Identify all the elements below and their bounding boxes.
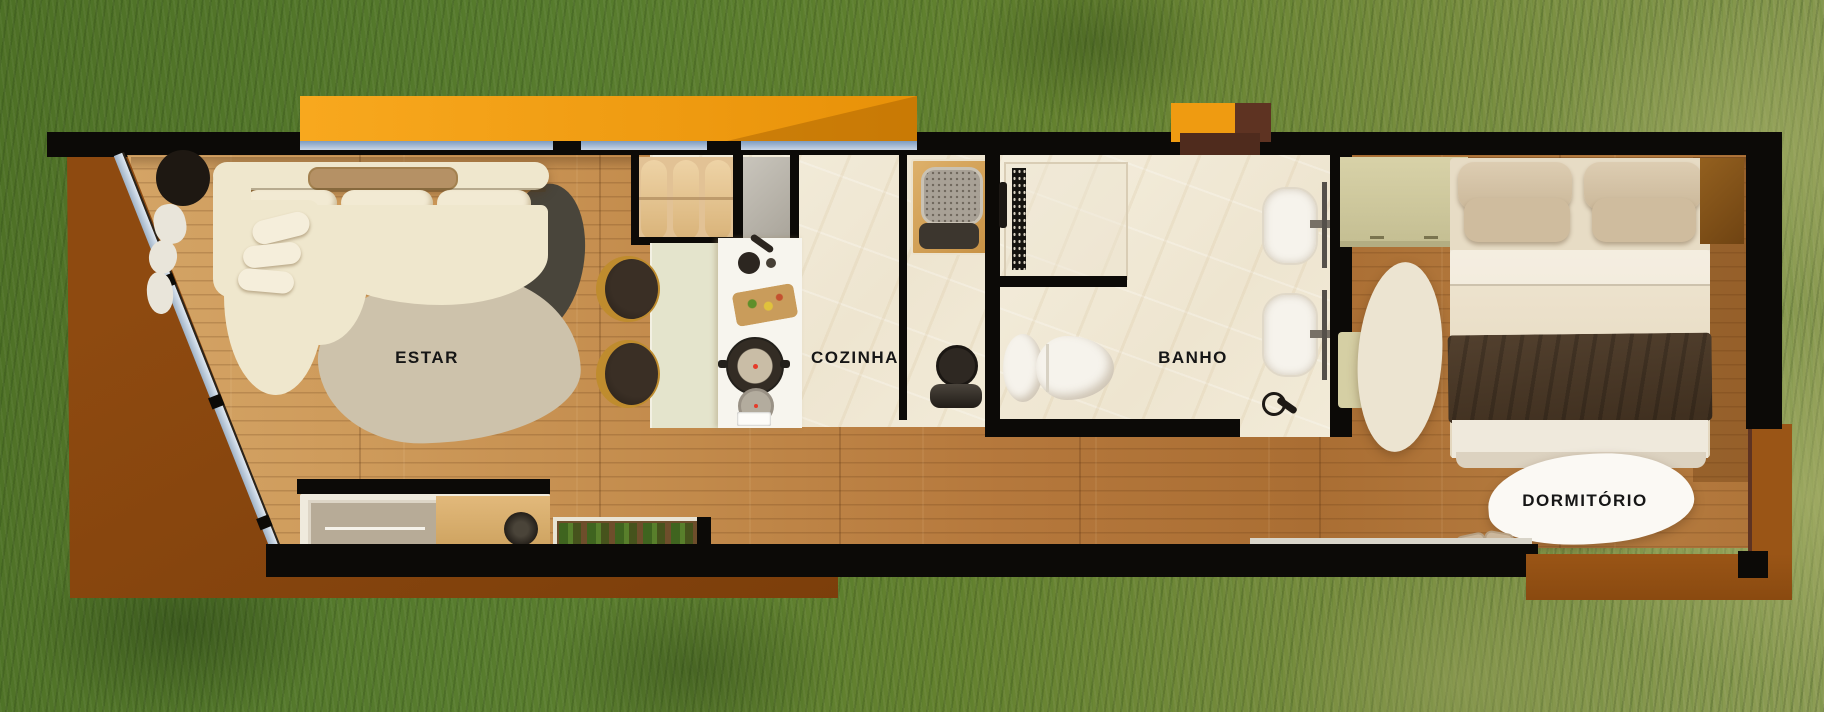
console-handle-icon (325, 527, 425, 530)
burner-indicator (753, 364, 758, 369)
sink-faucet-icon (1310, 330, 1332, 338)
room-label-dormitorio: DORMITÓRIO (1485, 491, 1685, 511)
counter-edge (899, 155, 907, 420)
deck-fold-shading (727, 96, 917, 141)
shower-partition-wall (997, 276, 1127, 287)
shower-drain-icon (1012, 168, 1026, 270)
sink-basin (919, 223, 979, 249)
bench-scallop (673, 160, 699, 240)
speaker-icon (504, 512, 538, 546)
toilet-seat-line (1046, 344, 1049, 392)
cabinet-frame (733, 153, 743, 245)
bedside-table (1700, 158, 1744, 244)
top-glass-window (300, 141, 917, 150)
desk-handle-icon (1424, 236, 1438, 239)
dining-bench (637, 157, 733, 243)
bench-scallop (705, 160, 731, 240)
bar-stool (596, 340, 660, 408)
kitchen-sink-board (911, 159, 989, 255)
soap-dispenser-icon (766, 258, 776, 268)
pot-handle-icon (718, 360, 728, 368)
console-wall-ledge (297, 479, 550, 494)
bathroom-bottom-wall (990, 419, 1240, 437)
bench-divider (637, 197, 733, 200)
mirror-ledge (1322, 182, 1327, 268)
cabinet-frame (790, 155, 799, 245)
deck-corner-post (1738, 551, 1768, 578)
right-wall (1746, 153, 1782, 429)
tall-cabinet (743, 157, 791, 241)
duvet-fold (1450, 250, 1710, 286)
bed-pillow (1592, 198, 1696, 242)
kitchen-island-base (650, 243, 720, 428)
bottom-wall (266, 544, 1538, 577)
cooktop-controls (737, 412, 771, 426)
stool-seat (605, 343, 658, 405)
bench-frame (631, 155, 639, 245)
top-orange-deck (300, 96, 917, 141)
coffee-machine-body (930, 384, 982, 408)
throw-blanket (1448, 333, 1713, 424)
bar-stool (596, 256, 660, 322)
stool-seat (605, 259, 658, 319)
bench-scallop (641, 160, 667, 240)
room-label-cozinha: COZINHA (775, 348, 935, 368)
room-label-estar: ESTAR (367, 348, 487, 368)
sofa-tray (308, 167, 458, 190)
bed-pillow (1464, 198, 1570, 242)
desk (1340, 157, 1468, 247)
desk-handle-icon (1370, 236, 1384, 239)
mirror-ledge (1322, 290, 1327, 380)
floor-plan-scene: ESTAR (0, 0, 1824, 712)
kitchen-bath-wall (985, 153, 1000, 437)
coffee-machine-icon (936, 345, 978, 387)
burner-indicator (754, 404, 758, 408)
shower-valve-icon (999, 182, 1007, 228)
kitchen-sink-icon (921, 167, 983, 225)
room-label-banho: BANHO (1113, 348, 1273, 368)
faucet-icon (738, 252, 760, 274)
sink-faucet-icon (1310, 220, 1332, 228)
plant-pot-icon (156, 150, 210, 206)
